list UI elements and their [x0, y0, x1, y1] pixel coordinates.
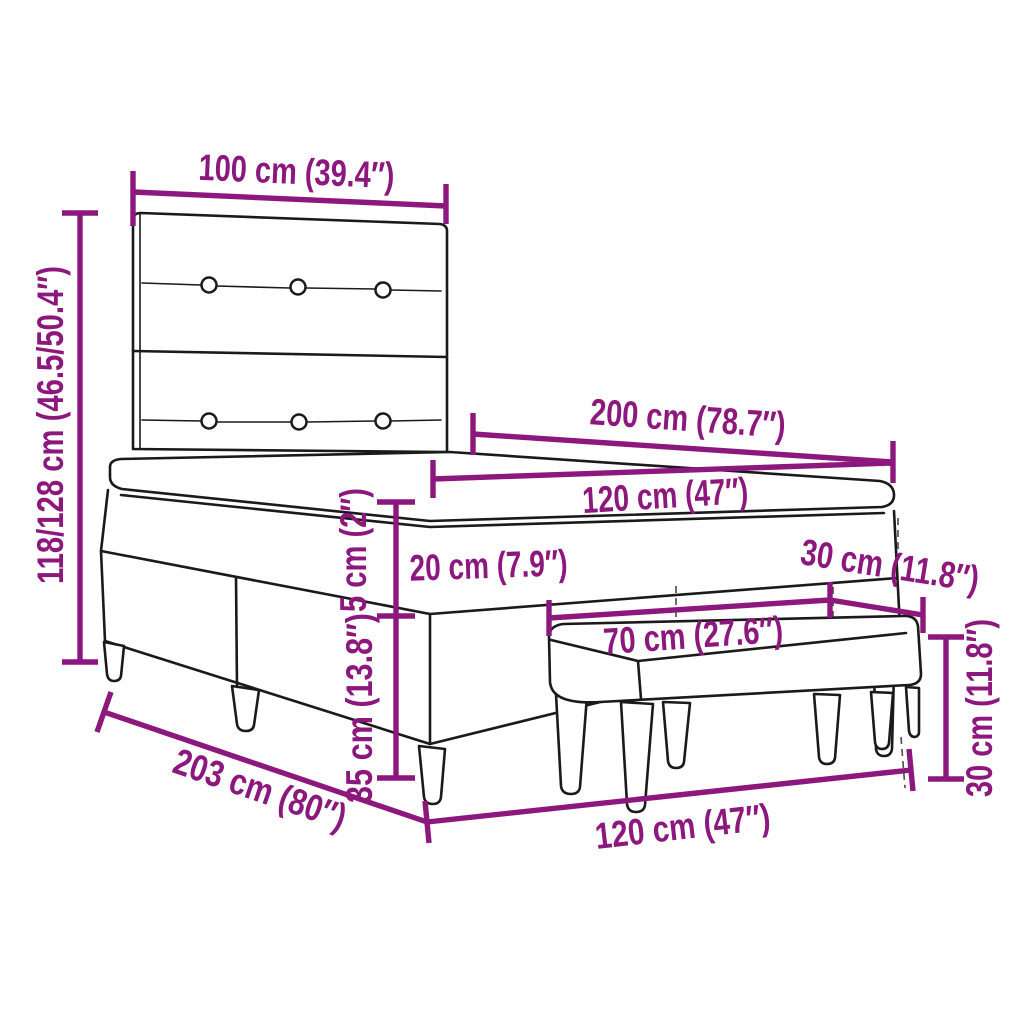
bed-leg	[104, 642, 124, 681]
bench-leg	[814, 694, 840, 764]
button-icon	[292, 415, 307, 430]
bench-leg	[556, 694, 587, 794]
diagram-canvas: 100 cm (39.4″) 118/128 cm (46.5/50.4″) 2…	[0, 0, 1024, 1024]
dim-label-bed-length: 200 cm (78.7″)	[589, 391, 787, 446]
dim-label-bench-height: 30 cm (11.8″)	[959, 619, 1000, 797]
dimension-diagram: 100 cm (39.4″) 118/128 cm (46.5/50.4″) 2…	[0, 0, 1024, 1024]
button-icon	[376, 414, 391, 429]
dimension-headboard-height: 118/128 cm (46.5/50.4″)	[30, 213, 98, 662]
dim-label-mattress-height: 20 cm (7.9″)	[409, 542, 568, 588]
bed-base-panel-seam	[236, 577, 237, 687]
bed-leg	[232, 686, 259, 731]
bench-leg	[906, 687, 919, 737]
dim-label-bed-width-bottom: 120 cm (47″)	[593, 796, 773, 857]
bench-leg	[621, 702, 653, 812]
bench-leg	[871, 692, 893, 749]
dim-label-base-length: 203 cm (80″)	[168, 740, 352, 837]
button-icon	[202, 278, 217, 293]
button-icon	[291, 280, 306, 295]
extension-line	[901, 737, 905, 788]
bench-leg	[663, 702, 690, 768]
bed-leg	[419, 746, 445, 804]
dim-label-topper-height: 5 cm (2″)	[333, 488, 374, 612]
dim-label-headboard-width: 100 cm (39.4″)	[198, 147, 396, 197]
headboard	[133, 213, 447, 452]
dim-label-headboard-height: 118/128 cm (46.5/50.4″)	[30, 266, 71, 584]
bed-drawing	[101, 213, 905, 804]
button-icon	[376, 283, 391, 298]
dimension-bench-height: 30 cm (11.8″)	[928, 619, 1000, 797]
dim-label-base-height: 35 cm (13.8″)	[339, 613, 380, 803]
button-icon	[202, 414, 217, 429]
